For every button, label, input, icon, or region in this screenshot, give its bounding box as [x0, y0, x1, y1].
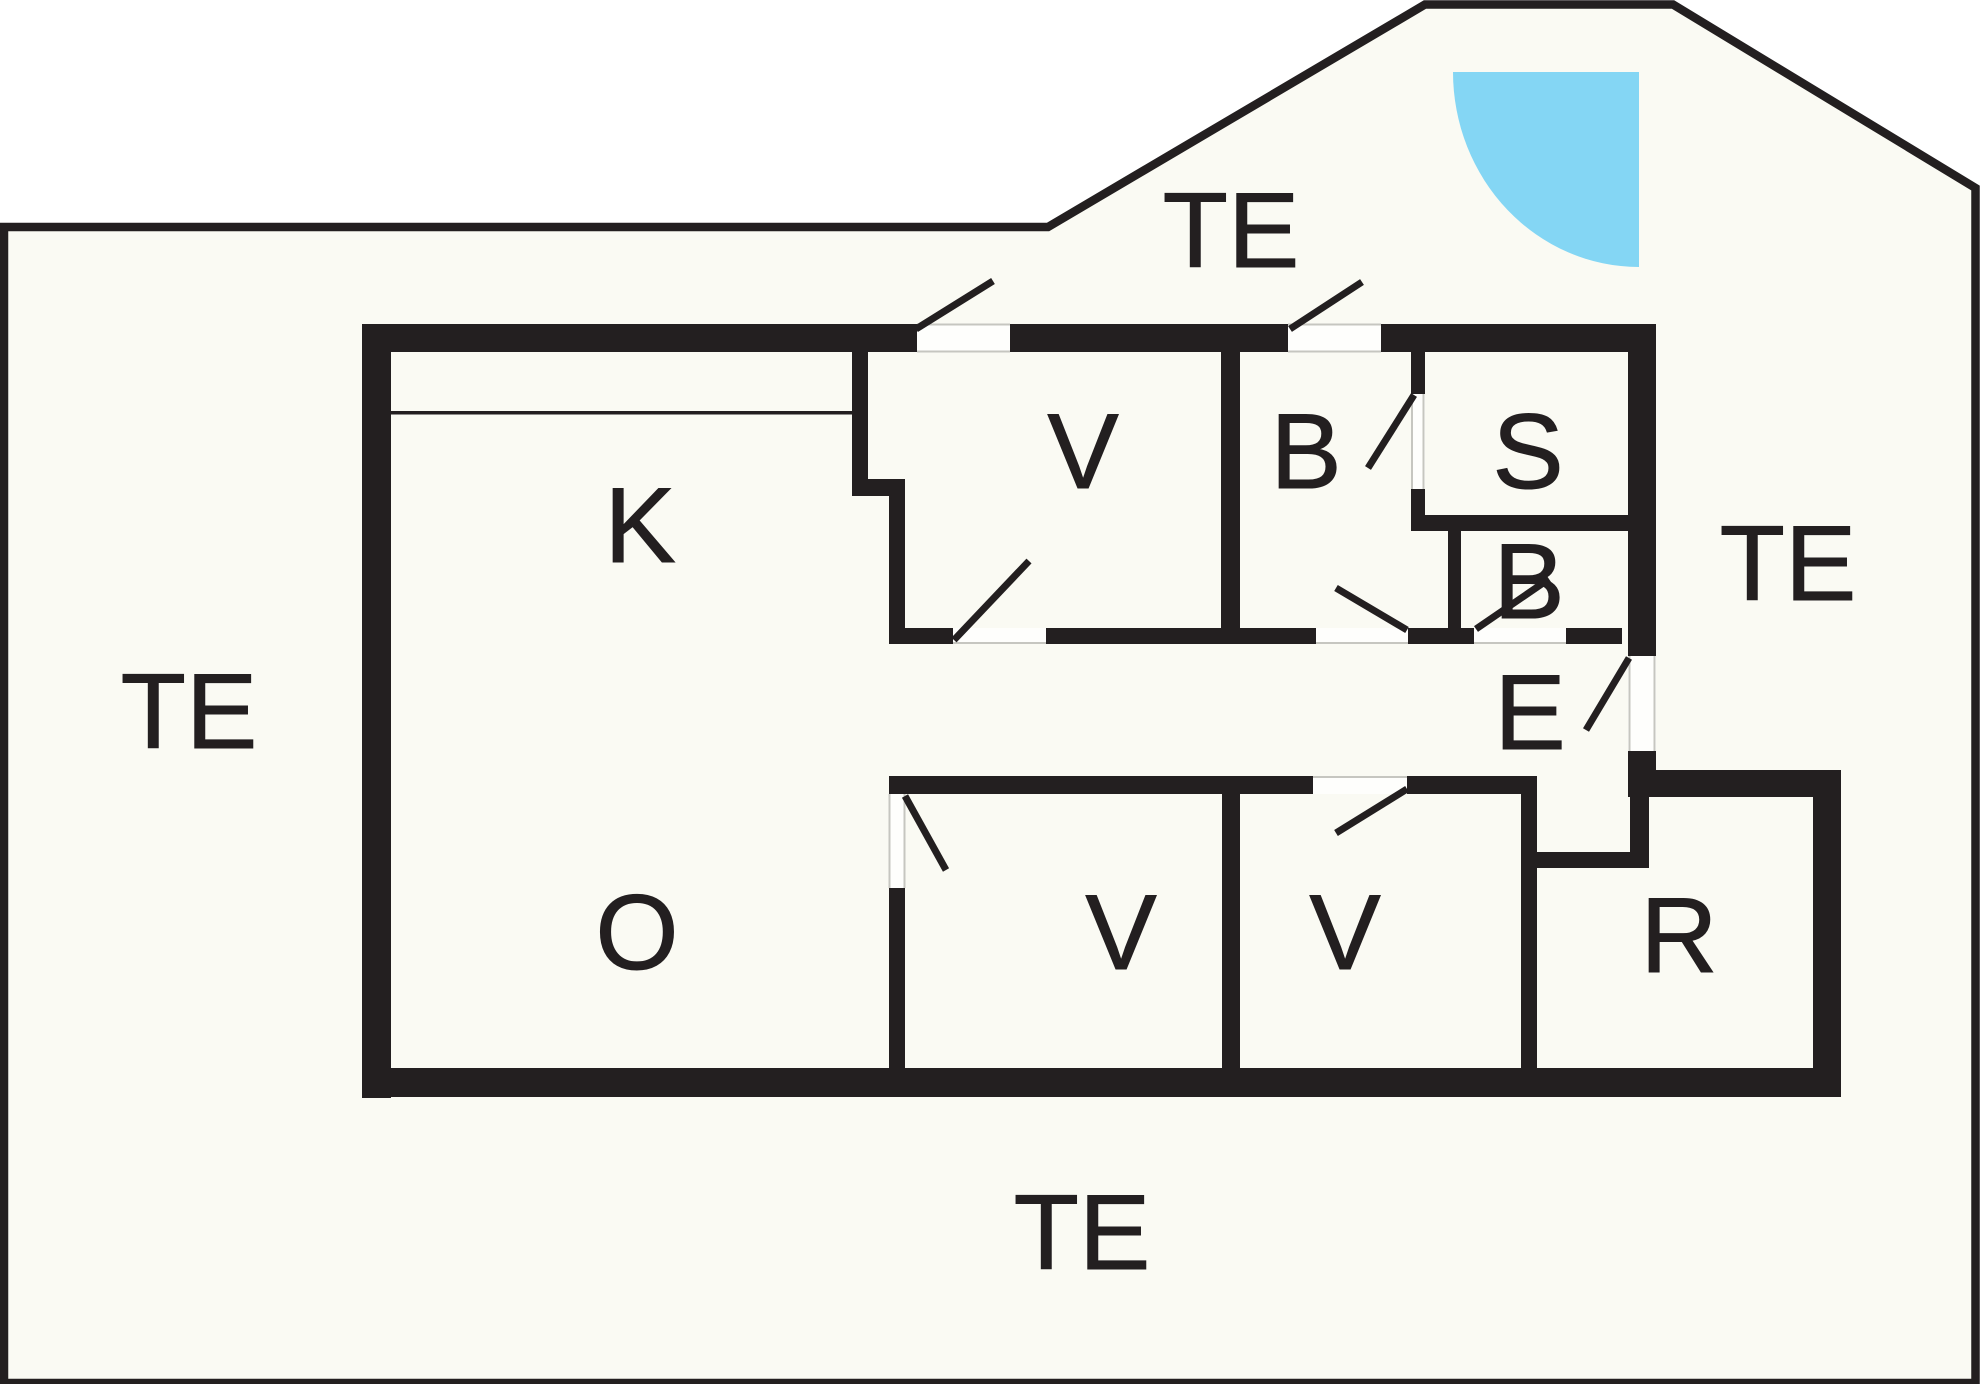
svg-text:K: K: [604, 465, 675, 585]
svg-text:O: O: [595, 872, 678, 992]
svg-text:TE: TE: [121, 651, 258, 771]
svg-text:V: V: [1047, 391, 1118, 511]
svg-text:B: B: [1270, 391, 1341, 511]
svg-text:TE: TE: [1163, 170, 1300, 290]
svg-text:S: S: [1492, 391, 1563, 511]
svg-text:TE: TE: [1720, 503, 1857, 623]
svg-text:V: V: [1085, 872, 1156, 992]
svg-text:TE: TE: [1014, 1172, 1151, 1292]
svg-text:B: B: [1493, 521, 1564, 641]
svg-text:E: E: [1494, 652, 1565, 772]
svg-text:R: R: [1640, 875, 1717, 995]
svg-text:V: V: [1309, 872, 1380, 992]
